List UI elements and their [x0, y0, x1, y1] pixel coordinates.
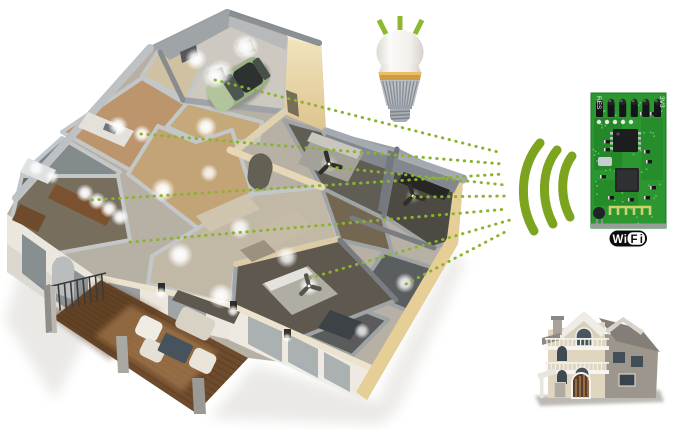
svg-text:RES: RES: [595, 96, 602, 110]
svg-text:3V3: 3V3: [658, 96, 665, 108]
svg-text:Fi: Fi: [631, 234, 644, 246]
svg-text:Wi: Wi: [613, 234, 628, 246]
